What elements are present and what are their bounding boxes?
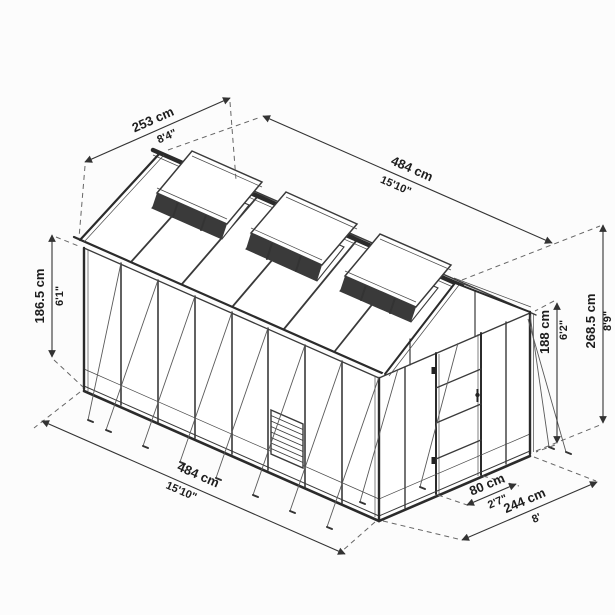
door-hinge bbox=[432, 367, 437, 374]
dimension-label-cm: 188 cm bbox=[537, 310, 552, 354]
dimension-label-cm: 268.5 cm bbox=[583, 294, 598, 349]
dimension-label-cm: 244 cm bbox=[501, 485, 547, 516]
door-hinge bbox=[432, 457, 437, 464]
dimension-label-imperial: 15'10" bbox=[164, 480, 198, 504]
diagram-canvas: 253 cm 8'4" 484 cm 15'10" 186.5 cm 6'1" … bbox=[0, 0, 615, 615]
dimension-label-cm: 186.5 cm bbox=[32, 269, 47, 324]
dimension-label-imperial: 15'10" bbox=[378, 174, 412, 198]
greenhouse-dimension-diagram: 253 cm 8'4" 484 cm 15'10" 186.5 cm 6'1" … bbox=[0, 0, 615, 615]
dimension-label-imperial: 8' bbox=[530, 511, 543, 526]
dimension-label-imperial: 8'9" bbox=[602, 311, 614, 331]
dimension-label-imperial: 8'4" bbox=[155, 127, 178, 146]
dimension-side-wall-height: 186.5 cm 6'1" bbox=[32, 235, 83, 387]
dimension-label-imperial: 6'2" bbox=[558, 320, 570, 340]
dimension-door-height: 188 cm 6'2" bbox=[535, 301, 570, 452]
dimension-label-imperial: 6'1" bbox=[54, 286, 66, 306]
